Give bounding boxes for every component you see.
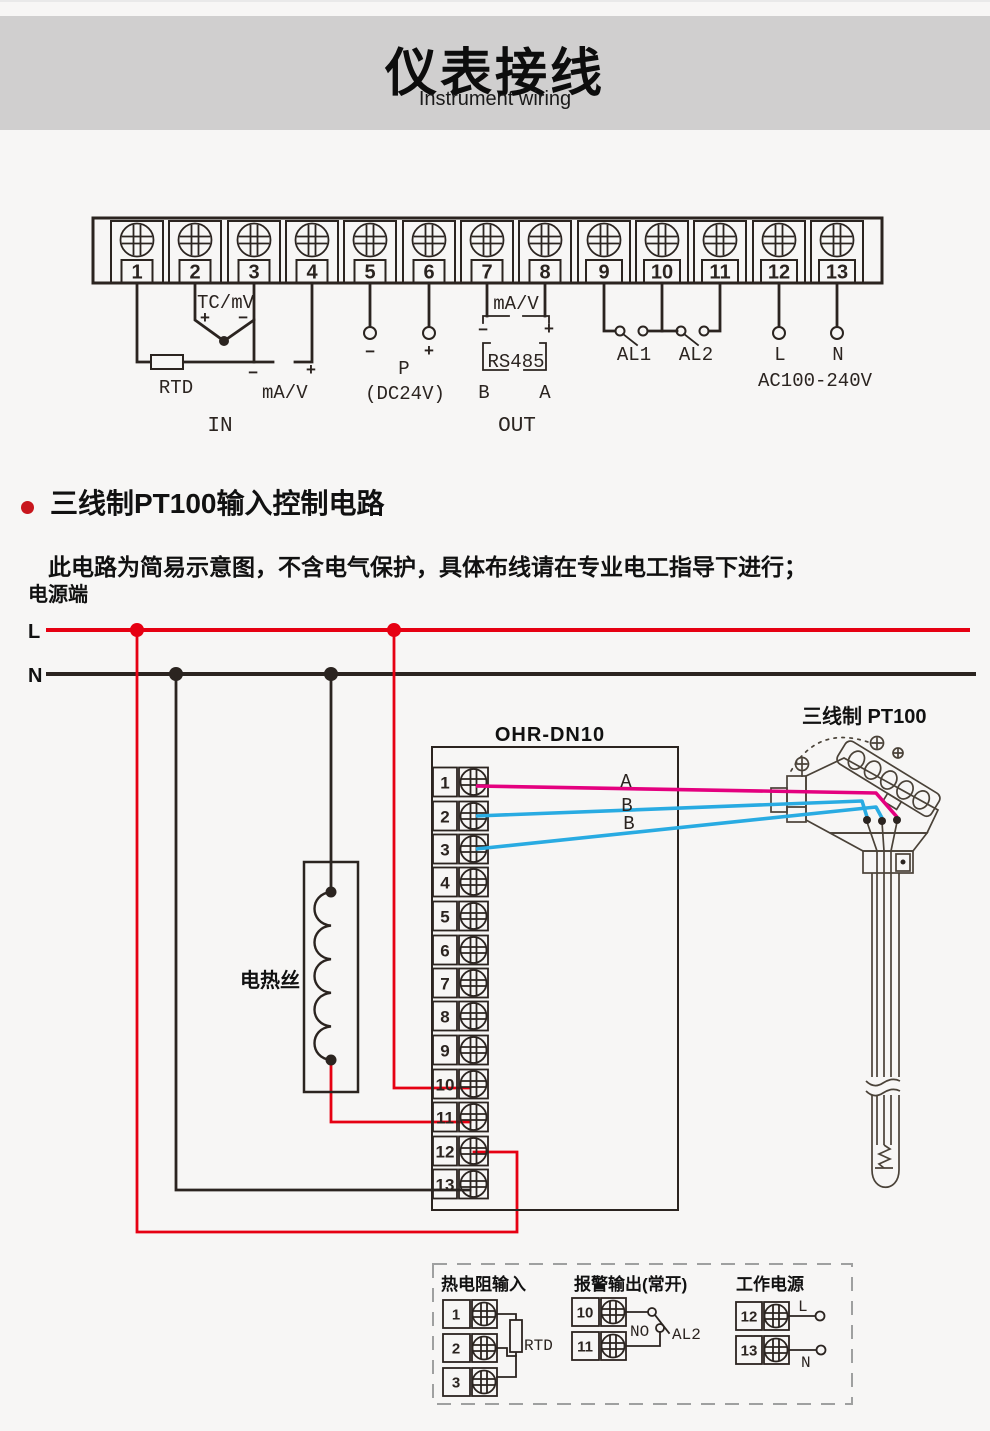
legend-number: 13: [741, 1343, 758, 1360]
ma-v-in-label: mA/V: [262, 382, 308, 404]
terminal-number: 4: [306, 262, 318, 284]
control-circuit: 电源端 L N 电热丝 OHR-DN10 1 2 3 4 5 6: [28, 583, 974, 1232]
terminal-number: 1: [131, 262, 142, 284]
page: { "header": { "title": "仪表接线", "subtitle…: [0, 0, 990, 1431]
legend-alarm-group: 报警输出(常开) 10 11 NO AL2: [572, 1274, 701, 1360]
terminal-number: 3: [248, 262, 259, 284]
rs485-label: RS485: [487, 351, 544, 373]
tc-junction-dot: [219, 336, 229, 346]
pt100-sensor: 三线制 PT100: [771, 704, 942, 1187]
row-number: 13: [436, 1176, 455, 1195]
legend-number: 12: [741, 1309, 758, 1326]
input-wiring: TC/mV + − RTD − mA/V + IN: [137, 283, 316, 438]
legend-alarm-title: 报警输出(常开): [574, 1274, 687, 1294]
legend-number: 10: [577, 1305, 594, 1322]
ac-supply-wiring: L N AC100-240V: [758, 283, 873, 392]
sensor-label: 三线制 PT100: [802, 704, 926, 728]
terminal-number: 13: [826, 262, 848, 284]
legend-al2-label: AL2: [672, 1326, 701, 1344]
controller-box: OHR-DN10 1 2 3 4 5 6 7 8 9 10 11 12 13: [432, 724, 678, 1210]
wire-b2-label: B: [623, 813, 634, 835]
terminal-number: 9: [598, 262, 609, 284]
sensing-element: [879, 1145, 890, 1168]
row-number: 3: [440, 841, 449, 860]
legend-rtd-label: RTD: [524, 1337, 553, 1355]
legend-rtd-resistor: [510, 1320, 522, 1352]
n-label: N: [832, 344, 843, 366]
terminal-number: 12: [768, 262, 790, 284]
minus-sign: −: [248, 365, 258, 384]
row-number: 6: [440, 942, 449, 961]
rs485-a-label: A: [539, 382, 551, 404]
l-label: L: [774, 344, 785, 366]
al2-label: AL2: [679, 344, 713, 366]
output-wiring: mA/V − + RS485 B A OUT: [478, 283, 554, 438]
line-l-label: L: [28, 621, 40, 643]
power-terminal-label: 电源端: [28, 583, 88, 606]
ac-voltage-label: AC100-240V: [758, 370, 873, 392]
row-number: 11: [436, 1109, 454, 1128]
rs485-b-label: B: [478, 382, 489, 404]
ma-v-out-label: mA/V: [493, 293, 539, 315]
in-label: IN: [207, 415, 232, 438]
heater: 电热丝: [240, 862, 358, 1092]
minus-sign: −: [238, 310, 248, 329]
p-label: P: [398, 358, 409, 380]
rtd-label: RTD: [159, 377, 193, 399]
dc24v-label: (DC24V): [365, 383, 445, 405]
legend-rtd-title: 热电阻输入: [441, 1274, 526, 1294]
wire-a-label: A: [620, 771, 632, 793]
terminal-strip: 1 2 3 4 5 6 7 8 9 10 11 12 13 TC/mV + − …: [93, 218, 882, 438]
row-number: 9: [440, 1042, 449, 1061]
row-number: 10: [436, 1076, 455, 1095]
legend-l-label: L: [798, 1298, 808, 1316]
legend-n-label: N: [801, 1354, 811, 1372]
row-number: 4: [440, 874, 450, 893]
legend-number: 2: [452, 1341, 460, 1358]
terminal-number: 2: [189, 262, 200, 284]
legend-number: 1: [452, 1307, 460, 1324]
row-number: 2: [440, 808, 449, 827]
plus-sign: +: [544, 321, 554, 340]
plus-sign: +: [424, 343, 434, 362]
heater-label: 电热丝: [240, 968, 300, 992]
legend: 热电阻输入 1 2 3 RTD 报警输出(常开) 10 11 NO AL2 工作…: [433, 1264, 852, 1404]
alarm-contacts: AL1 AL2: [604, 283, 720, 366]
out-label: OUT: [498, 415, 536, 438]
plus-sign: +: [200, 310, 210, 329]
terminal-number: 10: [651, 262, 673, 284]
legend-power-group: 工作电源 12 13 L N: [736, 1274, 826, 1372]
row-number: 1: [440, 774, 449, 793]
terminal-number: 11: [709, 262, 730, 284]
plus-sign: +: [306, 362, 316, 381]
legend-rtd-group: 热电阻输入 1 2 3 RTD: [441, 1274, 553, 1396]
minus-sign: −: [478, 322, 488, 341]
terminal-number: 8: [539, 262, 550, 284]
legend-number: 3: [452, 1375, 460, 1392]
row-number: 5: [440, 908, 449, 927]
wiring-diagram: 1 2 3 4 5 6 7 8 9 10 11 12 13 TC/mV + − …: [0, 0, 990, 1431]
heater-coil: [315, 892, 332, 1060]
line-n-label: N: [28, 665, 42, 687]
device-label: OHR-DN10: [495, 724, 605, 746]
power-out-wiring: − + P (DC24V): [364, 283, 445, 405]
terminal-number: 5: [364, 262, 375, 284]
terminal-number: 7: [481, 262, 492, 284]
legend-no-label: NO: [630, 1323, 649, 1341]
n-to-terminal13-wire: [176, 674, 470, 1190]
legend-number: 11: [577, 1339, 593, 1356]
al1-label: AL1: [617, 344, 651, 366]
terminal-number: 6: [423, 262, 434, 284]
minus-sign: −: [365, 344, 375, 363]
row-number: 7: [440, 975, 449, 994]
row-number: 8: [440, 1008, 449, 1027]
legend-power-title: 工作电源: [736, 1274, 804, 1294]
rtd-resistor: [151, 355, 183, 369]
row-number: 12: [436, 1143, 455, 1162]
